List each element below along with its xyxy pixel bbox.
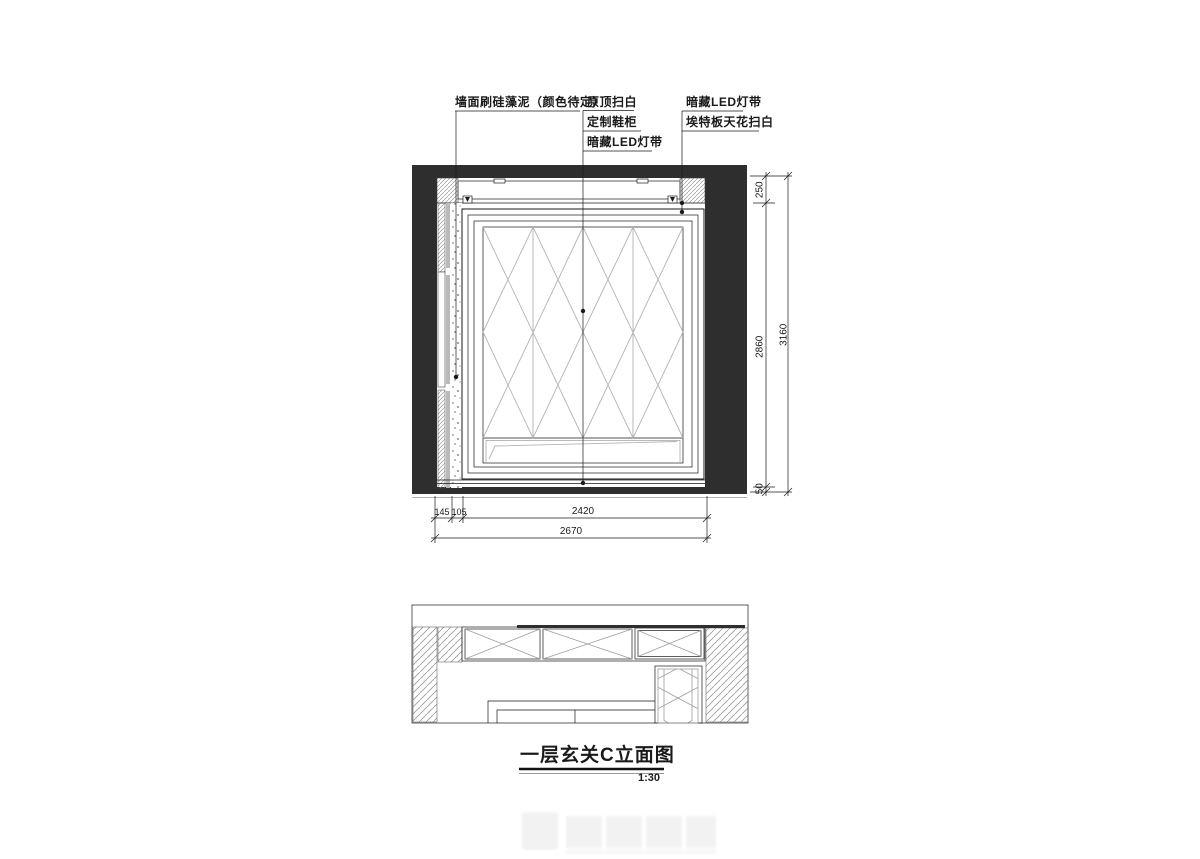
plan-view	[412, 605, 748, 728]
cad-sheet: 墙面刷硅藻泥（颜色待定） 原顶扫白 定制鞋柜 暗藏LED灯带 暗藏LED灯带 埃…	[0, 0, 1200, 859]
led-strip-symbol-left	[463, 196, 472, 203]
plan-corner-wall-hatch	[438, 627, 462, 662]
annotation-led-strip-mid: 暗藏LED灯带	[587, 136, 663, 150]
annotation-ceiling-paint: 原顶扫白	[587, 96, 637, 110]
watermark-logo	[522, 812, 558, 850]
elevation-view	[412, 165, 747, 498]
dim-3160: 3160	[778, 313, 790, 357]
left-wall	[412, 178, 437, 488]
wall-finish-strips	[438, 203, 462, 488]
led-recess-left	[437, 178, 458, 203]
dim-250: 250	[754, 173, 766, 207]
shoe-cabinet	[437, 209, 705, 484]
plan-left-wall-hatch	[413, 627, 437, 722]
plan-cabinet-boxes	[465, 628, 704, 659]
led-strip-symbol-right	[668, 196, 677, 203]
right-wall	[705, 178, 747, 488]
led-recess-right	[680, 178, 705, 203]
watermark	[515, 808, 745, 858]
annotation-shoe-cabinet: 定制鞋柜	[587, 116, 637, 130]
plan-floor-lines	[488, 701, 655, 723]
door-panel-left-pattern	[483, 227, 583, 438]
plan-wall-edge-line	[517, 625, 745, 628]
plan-right-wall-hatch	[706, 628, 748, 722]
dim-105: 105	[448, 507, 470, 517]
ceiling-slab	[412, 165, 747, 178]
dim-2860: 2860	[754, 325, 766, 369]
door-panel-right-pattern	[583, 227, 683, 438]
annotation-led-strip-right: 暗藏LED灯带	[686, 96, 762, 110]
dim-2670: 2670	[548, 526, 594, 538]
dim-50: 50	[754, 477, 766, 501]
dim-2420: 2420	[560, 506, 606, 518]
floor-band	[412, 487, 747, 494]
annotation-wall-finish: 墙面刷硅藻泥（颜色待定）	[455, 96, 605, 110]
annotation-eterpan-ceiling: 埃特板天花扫白	[686, 116, 774, 130]
drawing-title: 一层玄关C立面图	[520, 745, 675, 767]
drawing-scale: 1:30	[629, 772, 669, 785]
